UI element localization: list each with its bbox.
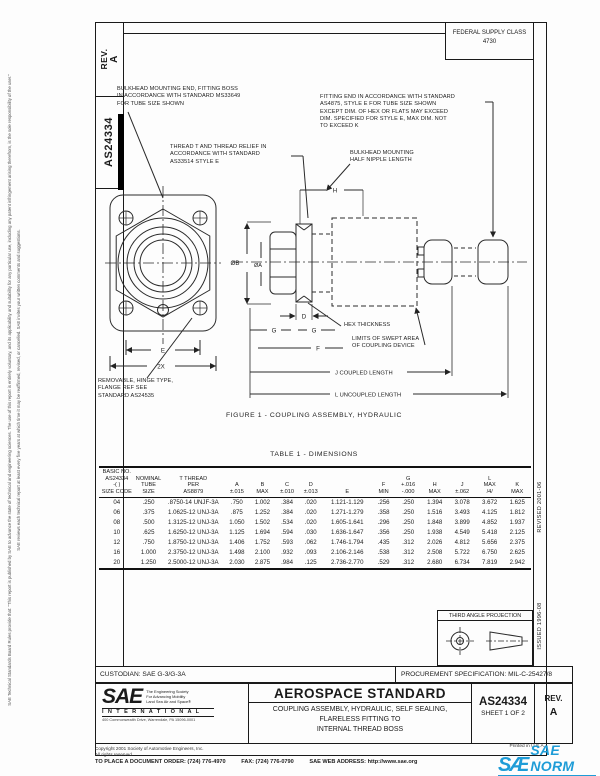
projection-box: THIRD ANGLE PROJECTION [437, 610, 533, 666]
table-cell: 2.030 [224, 558, 250, 569]
table-cell: 2.508 [421, 548, 448, 558]
table-cell: 1.498 [224, 548, 250, 558]
column-header: D ±.013 [299, 467, 323, 497]
column-header: J ±.062 [448, 467, 476, 497]
table-cell: 12 [99, 538, 135, 548]
table-cell: .312 [395, 558, 421, 569]
table-cell: .256 [372, 497, 396, 507]
column-header: L MAX /4/ [476, 467, 503, 497]
table-cell: .250 [395, 497, 421, 507]
table-cell: 1.002 [250, 497, 276, 507]
table-cell: .030 [299, 528, 323, 538]
column-header: E [323, 467, 372, 497]
table-title: TABLE 1 - DIMENSIONS [95, 451, 533, 458]
fsc-label: FEDERAL SUPPLY CLASS [446, 29, 533, 38]
dim-e: E [161, 348, 165, 355]
table-header: BASIC NO. AS24334 -( ) SIZE CODENOMINAL … [99, 467, 531, 497]
table-cell: 16 [99, 548, 135, 558]
table-cell: 2.625 [503, 548, 531, 558]
revised-stamp: REVISED 2001-06 [534, 467, 546, 547]
table-cell: .875 [224, 508, 250, 518]
table-cell: 1.000 [135, 548, 163, 558]
table-cell: .8750-14 UNJF-3A [163, 497, 225, 507]
dim-d: D [302, 313, 307, 320]
standard-title: COUPLING ASSEMBLY, HYDRAULIC, SELF SEALI… [249, 703, 471, 735]
rev-cell: REV. A [534, 684, 572, 743]
table-cell: 7.819 [476, 558, 503, 569]
table-cell: 3.078 [448, 497, 476, 507]
table-cell: .534 [275, 518, 299, 528]
table-cell: .250 [395, 508, 421, 518]
custodian-row: CUSTODIAN: SAE G-3/G-3A PROCUREMENT SPEC… [95, 666, 573, 683]
leader-half-nipple [327, 164, 351, 191]
table-cell: 1.746-1.794 [323, 538, 372, 548]
title-block: SAE The Engineering Society For Advancin… [95, 683, 573, 744]
dim-coupled-length: J COUPLED LENGTH [335, 370, 393, 376]
sae-address: 400 Commonwealth Drive, Warrendale, PA 1… [102, 718, 245, 722]
table-cell: .125 [299, 558, 323, 569]
table-cell: 2.125 [503, 528, 531, 538]
table-cell: 4.852 [476, 518, 503, 528]
port-nut [270, 232, 296, 294]
left-margin-note-2: SAE reviews each technical report at lea… [13, 25, 23, 755]
table-cell: 1.252 [250, 508, 276, 518]
order-fax: FAX: (724) 776-0790 [241, 759, 294, 765]
table-cell: 5.418 [476, 528, 503, 538]
table-cell: 6.750 [476, 548, 503, 558]
doc-number-cell: AS24334 SHEET 1 OF 2 [471, 684, 534, 743]
table-cell: .375 [135, 508, 163, 518]
fitting-note: FITTING END IN ACCORDANCE WITH STANDARD … [320, 94, 492, 130]
table-cell: 2.5000-12 UNJ-3A [163, 558, 225, 569]
procurement-spec: PROCUREMENT SPECIFICATION: MIL-C-25427/8 [395, 667, 572, 682]
table-cell: 3.672 [476, 497, 503, 507]
table-cell: 1.938 [421, 528, 448, 538]
table-cell: .750 [224, 497, 250, 507]
table-cell: .435 [372, 538, 396, 548]
table-row: 201.2502.5000-12 UNJ-3A2.0302.875.984.12… [99, 558, 531, 569]
dim-dia-b: ØB [231, 260, 240, 267]
rights-line: All rights reserved. [95, 752, 133, 757]
table-cell: 1.812 [503, 508, 531, 518]
table-cell: .020 [299, 518, 323, 528]
dim-dia-a: ØA [254, 263, 262, 269]
leader-hex-thickness [308, 303, 341, 326]
table-cell: 1.250 [135, 558, 163, 569]
column-header: NOMINAL TUBE SIZE [135, 467, 163, 497]
projection-symbol [438, 621, 532, 661]
table-cell: .984 [275, 558, 299, 569]
table-row: 10.6251.6250-12 UNJ-3A1.1251.694.594.030… [99, 528, 531, 538]
fsc-code: 4730 [446, 38, 533, 47]
table-cell: 1.050 [224, 518, 250, 528]
table-cell: .593 [275, 538, 299, 548]
table-cell: .093 [299, 548, 323, 558]
table-cell: 2.680 [421, 558, 448, 569]
table-cell: .312 [395, 538, 421, 548]
table-cell: .358 [372, 508, 396, 518]
column-header: T THREAD PER AS8879 [163, 467, 225, 497]
table-body: 04.250.8750-14 UNJF-3A.7501.002.384.0201… [99, 497, 531, 568]
table-row: 04.250.8750-14 UNJF-3A.7501.002.384.0201… [99, 497, 531, 507]
column-header: C ±.010 [275, 467, 299, 497]
table-cell: .356 [372, 528, 396, 538]
sae-logo-cell: SAE The Engineering Society For Advancin… [96, 684, 248, 743]
sae-tagline: The Engineering Society For Advancing Mo… [146, 690, 191, 705]
sae-norm-glyph: SÆ [498, 757, 527, 774]
sae-norm-logo: SÆ SAE NORM INTERNATIONAL [498, 742, 596, 772]
leader-removable [147, 318, 192, 378]
table-cell: 1.3125-12 UNJ-3A [163, 518, 225, 528]
column-header: H MAX [421, 467, 448, 497]
table-cell: .020 [299, 497, 323, 507]
dimensions-table: BASIC NO. AS24334 -( ) SIZE CODENOMINAL … [99, 466, 531, 570]
bulkhead-note: BULKHEAD MOUNTING END, FITTING BOSS IN A… [117, 86, 282, 108]
table-cell: 1.6250-12 UNJ-3A [163, 528, 225, 538]
table-cell: 4.549 [448, 528, 476, 538]
swept-area-note: LIMITS OF SWEPT AREA OF COUPLING DEVICE [352, 336, 470, 351]
table-cell: 1.937 [503, 518, 531, 528]
copyright-line: Copyright 2001 Society of Automotive Eng… [95, 746, 204, 751]
table-cell: 04 [99, 497, 135, 507]
hex-thickness-note: HEX THICKNESS [344, 322, 434, 329]
leader-bulkhead-note [128, 112, 163, 198]
table-cell: 1.502 [250, 518, 276, 528]
table-cell: 6.734 [448, 558, 476, 569]
table-cell: 2.3750-12 UNJ-3A [163, 548, 225, 558]
table-cell: 1.752 [250, 538, 276, 548]
table-cell: 1.605-1.641 [323, 518, 372, 528]
table-cell: 1.406 [224, 538, 250, 548]
table-cell: 1.0625-12 UNJ-3A [163, 508, 225, 518]
table-cell: 20 [99, 558, 135, 569]
table-cell: 4.812 [448, 538, 476, 548]
table-cell: .625 [135, 528, 163, 538]
table-cell: 2.106-2.146 [323, 548, 372, 558]
table-cell: 06 [99, 508, 135, 518]
order-web: SAE WEB ADDRESS: http://www.sae.org [309, 759, 417, 765]
table-cell: .932 [275, 548, 299, 558]
order-line: TO PLACE A DOCUMENT ORDER: (724) 776-497… [95, 759, 417, 765]
table-cell: 4.125 [476, 508, 503, 518]
issued-stamp: ISSUED 1996-08 [534, 589, 546, 663]
column-header: BASIC NO. AS24334 -( ) SIZE CODE [99, 467, 135, 497]
table-cell: .384 [275, 508, 299, 518]
column-header: K MAX [503, 467, 531, 497]
table-row: 08.5001.3125-12 UNJ-3A1.0501.502.534.020… [99, 518, 531, 528]
table-cell: 10 [99, 528, 135, 538]
standard-type: AEROSPACE STANDARD [249, 684, 471, 703]
dim-g1: G [272, 328, 277, 335]
table-cell: 1.121-1.129 [323, 497, 372, 507]
document-page: SAE Technical Standards Board Rules prov… [0, 0, 600, 776]
projection-label: THIRD ANGLE PROJECTION [438, 611, 532, 621]
dim-g2: G [312, 328, 317, 335]
table-row: 12.7501.8750-12 UNJ-3A1.4061.752.593.062… [99, 538, 531, 548]
table-cell: 1.516 [421, 508, 448, 518]
table-row: 06.3751.0625-12 UNJ-3A.8751.252.384.0201… [99, 508, 531, 518]
table-cell: .384 [275, 497, 299, 507]
table-cell: 1.694 [250, 528, 276, 538]
table-cell: 3.493 [448, 508, 476, 518]
table-cell: 1.394 [421, 497, 448, 507]
column-header: G +.016 -.000 [395, 467, 421, 497]
dim-h: H [333, 188, 337, 195]
table-cell: 3.899 [448, 518, 476, 528]
table-cell: .594 [275, 528, 299, 538]
figure-caption: FIGURE 1 - COUPLING ASSEMBLY, HYDRAULIC [95, 412, 533, 419]
column-header: F MIN [372, 467, 396, 497]
table-cell: .538 [372, 548, 396, 558]
dim-2x: 2X [157, 364, 165, 371]
standard-title-cell: AEROSPACE STANDARD COUPLING ASSEMBLY, HY… [248, 684, 471, 743]
sae-logo: SAE [102, 688, 142, 707]
column-header: A ±.015 [224, 467, 250, 497]
rev-value: A [535, 706, 572, 718]
removable-flange-note: REMOVABLE, HINGE TYPE, FLANGE REF SEE ST… [98, 378, 216, 400]
table-cell: .062 [299, 538, 323, 548]
table-cell: 1.848 [421, 518, 448, 528]
federal-supply-class-box: FEDERAL SUPPLY CLASS 4730 [445, 23, 533, 60]
table-cell: .250 [135, 497, 163, 507]
table-cell: 1.271-1.279 [323, 508, 372, 518]
sheet-number: SHEET 1 OF 2 [472, 710, 534, 717]
table-cell: 2.100 [250, 548, 276, 558]
table-cell: 2.375 [503, 538, 531, 548]
table-cell: 2.875 [250, 558, 276, 569]
table-cell: 08 [99, 518, 135, 528]
table-cell: .750 [135, 538, 163, 548]
table-cell: 2.026 [421, 538, 448, 548]
table-cell: 2.736-2.770 [323, 558, 372, 569]
table-row: 161.0002.3750-12 UNJ-3A1.4982.100.932.09… [99, 548, 531, 558]
table-cell: .296 [372, 518, 396, 528]
order-phone: TO PLACE A DOCUMENT ORDER: (724) 776-497… [95, 759, 226, 765]
thread-note: THREAD T AND THREAD RELIEF IN ACCORDANCE… [170, 144, 310, 166]
table-cell: .500 [135, 518, 163, 528]
table-cell: 5.722 [448, 548, 476, 558]
dim-uncoupled-length: L UNCOUPLED LENGTH [335, 392, 401, 398]
half-nipple-note: BULKHEAD MOUNTING HALF NIPPLE LENGTH [350, 150, 458, 165]
custodian: CUSTODIAN: SAE G-3/G-3A [96, 671, 395, 678]
top-inner-rule [124, 33, 445, 34]
table-cell: .250 [395, 518, 421, 528]
table-cell: 1.125 [224, 528, 250, 538]
table-cell: .020 [299, 508, 323, 518]
table-cell: .312 [395, 548, 421, 558]
sae-international: I N T E R N A T I O N A L [102, 708, 214, 717]
table-cell: 1.636-1.647 [323, 528, 372, 538]
table-cell: 1.625 [503, 497, 531, 507]
doc-number: AS24334 [472, 696, 534, 708]
port-hex [296, 224, 312, 302]
table-cell: 5.656 [476, 538, 503, 548]
dim-f: F [316, 346, 320, 353]
column-header: B MAX [250, 467, 276, 497]
table-cell: .529 [372, 558, 396, 569]
table-cell: .250 [395, 528, 421, 538]
sae-norm-text: SAE NORM [530, 742, 596, 774]
table-cell: 1.8750-12 UNJ-3A [163, 538, 225, 548]
table-cell: 2.942 [503, 558, 531, 569]
rev-label: REV. [535, 694, 572, 703]
